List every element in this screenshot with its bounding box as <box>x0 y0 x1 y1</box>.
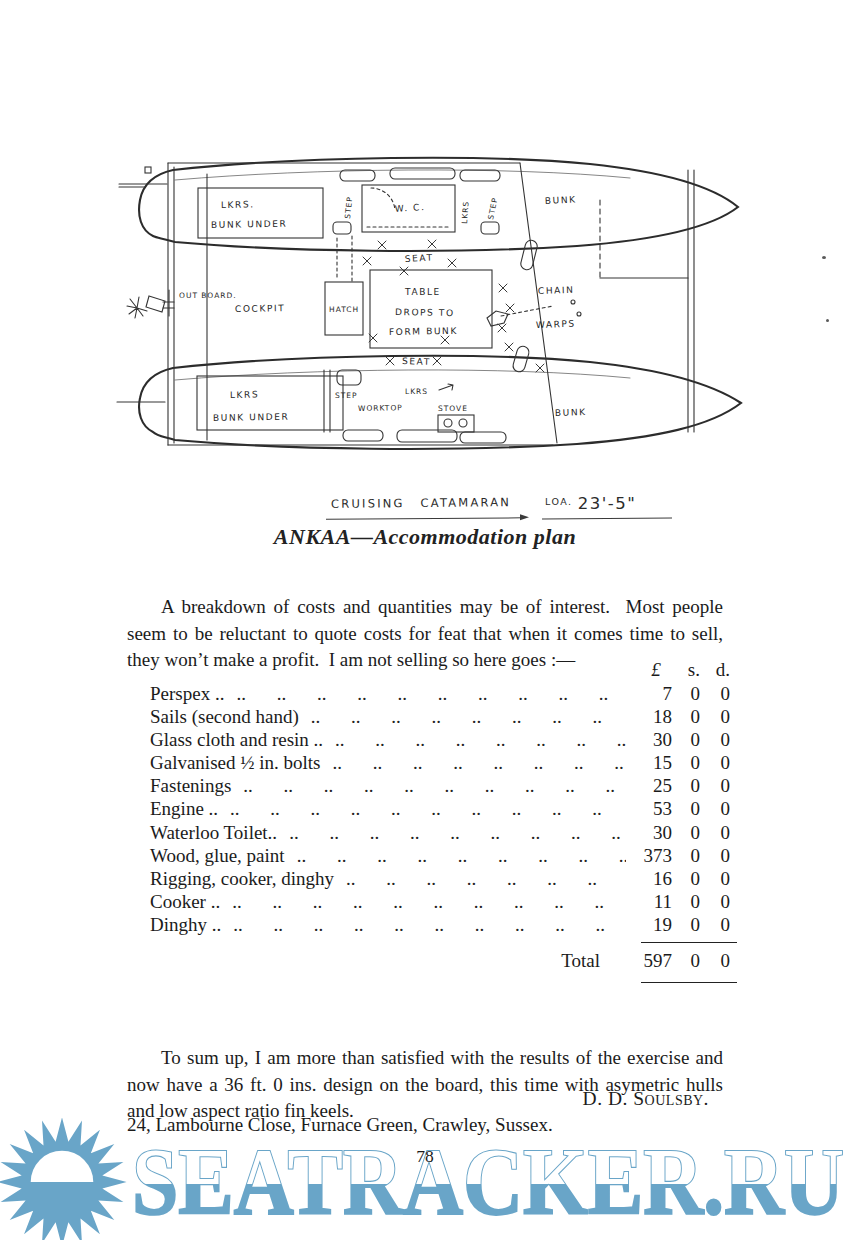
dot-leader: .. .. .. .. .. .. .. .. .. .. .. .. <box>277 821 626 844</box>
plan-label-seat-aft: SEAT <box>405 253 434 264</box>
total-row: Total 597 0 0 <box>150 946 730 976</box>
cost-row: Engine .... .. .. .. .. .. .. .. .. .. .… <box>150 797 730 820</box>
handwritten-caption-title: CRUISING CATAMARAN <box>331 495 511 511</box>
step-hatch-bottom <box>337 370 361 385</box>
plan-label-table-1: TABLE <box>404 287 441 297</box>
seatracker-watermark: SEATRACKER.RU <box>0 1118 848 1240</box>
deck-hatch-1 <box>340 170 375 181</box>
total-rule-bottom <box>641 982 737 983</box>
header-shillings: s. <box>672 658 700 682</box>
plan-label-lkrs-top: LKRS. <box>221 199 255 210</box>
galley-bulkhead <box>324 370 330 432</box>
dot-leader: .. .. .. .. .. .. .. .. .. .. .. .. <box>231 774 626 797</box>
chain-link-2 <box>577 312 581 316</box>
plan-label-step-aft: STEP <box>343 196 354 219</box>
cost-row: Sails (second hand).. .. .. .. .. .. .. … <box>150 705 730 728</box>
plan-label-stove: STOVE <box>438 404 468 413</box>
author-signature: D. D. Soulsby. <box>127 1088 723 1110</box>
cost-table-header: £ s. d. <box>150 658 730 682</box>
caption-underline-arrow <box>326 517 522 519</box>
outboard-motor-sketch <box>127 290 174 318</box>
step-hatch-fwd <box>481 222 499 234</box>
plan-label-lkrs-bottom2: LKRS <box>405 387 428 396</box>
cost-row: Glass cloth and resin .... .. .. .. .. .… <box>150 728 730 751</box>
stove-burner-2 <box>459 419 467 427</box>
plan-label-hatch: HATCH <box>329 305 359 314</box>
stove-burner-1 <box>444 419 452 427</box>
plan-label-lkrs-mid: LKRS <box>460 200 471 224</box>
closing-paragraph: To sum up, I am more than satisfied with… <box>127 1045 723 1125</box>
accommodation-plan-drawing: LKRS. BUNK UNDER STEP W. C. LKRS STEP BU… <box>105 140 750 490</box>
plan-label-table-3: FORM BUNK <box>389 326 458 337</box>
plan-label-bunk-top: BUNK <box>545 194 577 206</box>
header-pence: d. <box>700 658 730 682</box>
step-hatch-aft <box>333 222 351 234</box>
chainpipe-upper <box>520 239 539 271</box>
bottom-locker-1 <box>343 430 383 441</box>
dot-leader: .. .. .. .. .. .. .. .. .. .. .. .. <box>218 797 626 820</box>
cost-row: Fastenings.. .. .. .. .. .. .. .. .. .. … <box>150 774 730 797</box>
deck-hatch-3 <box>460 170 500 181</box>
lkrs-arrow <box>439 384 453 390</box>
plan-label-bunk-under-top: BUNK UNDER <box>211 219 288 230</box>
total-rule-top <box>641 942 737 943</box>
plan-label-bunk-under-bottom: BUNK UNDER <box>213 412 290 423</box>
cost-total-block: Total 597 0 0 <box>150 942 730 983</box>
locker-box-top <box>198 188 323 238</box>
loa-value: 23'-5" <box>578 494 637 513</box>
loa-label: LOA. <box>545 496 573 507</box>
plan-label-outboard: OUT BOARD. <box>179 291 237 300</box>
dot-leader: .. .. .. .. .. .. .. .. .. .. .. .. <box>299 705 626 728</box>
handwritten-caption-loa: LOA. 23'-5" <box>545 494 636 513</box>
dot-leader: .. .. .. .. .. .. .. .. .. .. .. .. <box>220 890 626 913</box>
dot-leader: .. .. .. .. .. .. .. .. .. .. .. .. <box>334 867 626 890</box>
walkway-dashes <box>337 236 352 282</box>
watermark-text: SEATRACKER.RU <box>132 1129 844 1235</box>
plan-label-step-bottom: STEP <box>335 391 358 400</box>
plan-label-bunk-bottom: BUNK <box>555 407 587 418</box>
sun-logo-icon <box>0 1118 127 1240</box>
chain-link-1 <box>571 300 575 304</box>
dust-speck <box>826 319 829 322</box>
stern-fitting <box>145 167 151 173</box>
plan-label-warps: WARPS <box>536 319 576 330</box>
bottom-hull-inner-line <box>175 370 630 380</box>
cost-table: £ s. d. Perspex .... .. .. .. .. .. .. .… <box>150 658 730 936</box>
crossbeam-lines <box>688 170 694 432</box>
dot-leader: .. .. .. .. .. .. .. .. .. .. .. .. <box>221 913 626 936</box>
dust-speck <box>822 256 826 259</box>
dot-leader: .. .. .. .. .. .. .. .. .. .. .. .. <box>285 844 626 867</box>
dot-leader: .. .. .. .. .. .. .. .. .. .. .. .. <box>323 728 626 751</box>
plan-label-step-fwd: STEP <box>486 196 500 220</box>
cost-row: Galvanised ½ in. bolts.. .. .. .. .. .. … <box>150 751 730 774</box>
plan-label-chain: CHAIN <box>538 285 575 296</box>
loa-underline <box>542 517 672 519</box>
plan-label-lkrs-bottom: LKRS <box>230 389 259 400</box>
plan-label-table-2: DROPS TO <box>395 307 455 318</box>
plan-label-worktop: WORKTOP <box>358 403 403 413</box>
cost-row: Rigging, cooker, dinghy.. .. .. .. .. ..… <box>150 867 730 890</box>
bottom-locker-3 <box>460 432 506 443</box>
chainpipe-lower <box>512 345 531 373</box>
plan-label-cockpit: COCKPIT <box>235 303 286 314</box>
stern-spar-top <box>119 184 167 187</box>
figure-caption: ANKAA—Accommodation plan <box>128 524 722 550</box>
cost-row: Waterloo Toilet.... .. .. .. .. .. .. ..… <box>150 821 730 844</box>
plan-label-seat-fwd: SEAT <box>402 356 431 367</box>
cost-row: Dinghy .... .. .. .. .. .. .. .. .. .. .… <box>150 913 730 936</box>
wc-door-arc <box>371 188 395 210</box>
anchor-sketch <box>487 311 508 326</box>
plan-label-wc: W. C. <box>394 202 425 214</box>
cost-row: Wood, glue, paint.. .. .. .. .. .. .. ..… <box>150 844 730 867</box>
header-pounds: £ <box>626 658 672 682</box>
cost-row: Cooker .... .. .. .. .. .. .. .. .. .. .… <box>150 890 730 913</box>
dot-leader: .. .. .. .. .. .. .. .. .. .. .. .. <box>320 751 626 774</box>
scanned-book-page: LKRS. BUNK UNDER STEP W. C. LKRS STEP BU… <box>0 0 848 1240</box>
dot-leader: .. .. .. .. .. .. .. .. .. .. .. .. <box>224 682 626 705</box>
total-label: Total <box>561 946 626 976</box>
page-number: 78 <box>127 1146 723 1167</box>
cost-row: Perspex .... .. .. .. .. .. .. .. .. .. … <box>150 682 730 705</box>
